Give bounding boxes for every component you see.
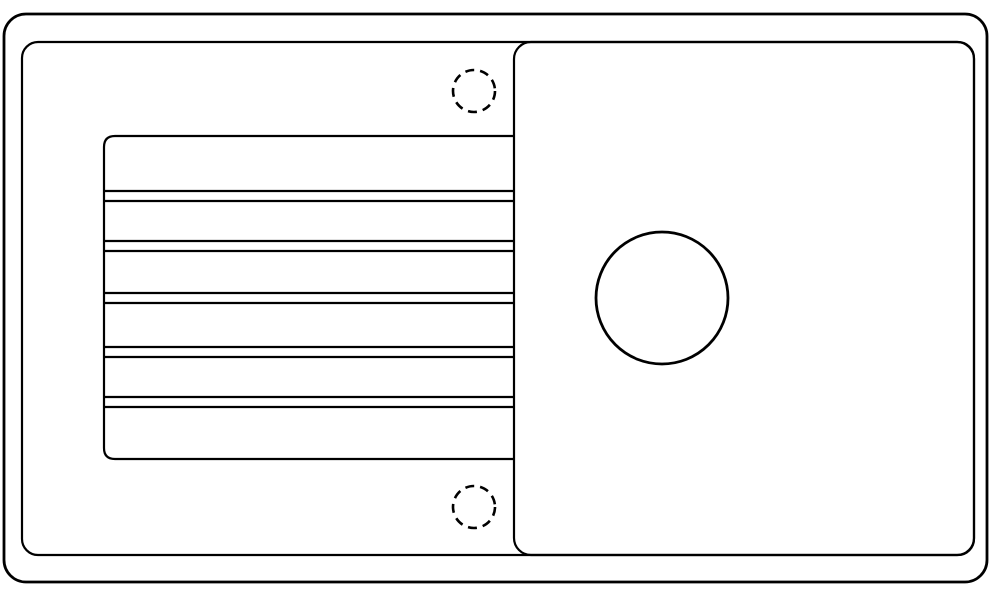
sink-inner-rim-outline: [22, 42, 974, 555]
sink-diagram-svg: [0, 0, 1000, 597]
faucet-hole-top-dashed: [453, 70, 495, 112]
drainboard-outline: [104, 136, 514, 459]
basin-outline: [514, 42, 974, 555]
sink-outer-rim-outline: [4, 14, 987, 582]
faucet-hole-bottom-dashed: [453, 486, 495, 528]
sink-technical-drawing: [0, 0, 1000, 597]
drain-hole-outline: [596, 232, 728, 364]
